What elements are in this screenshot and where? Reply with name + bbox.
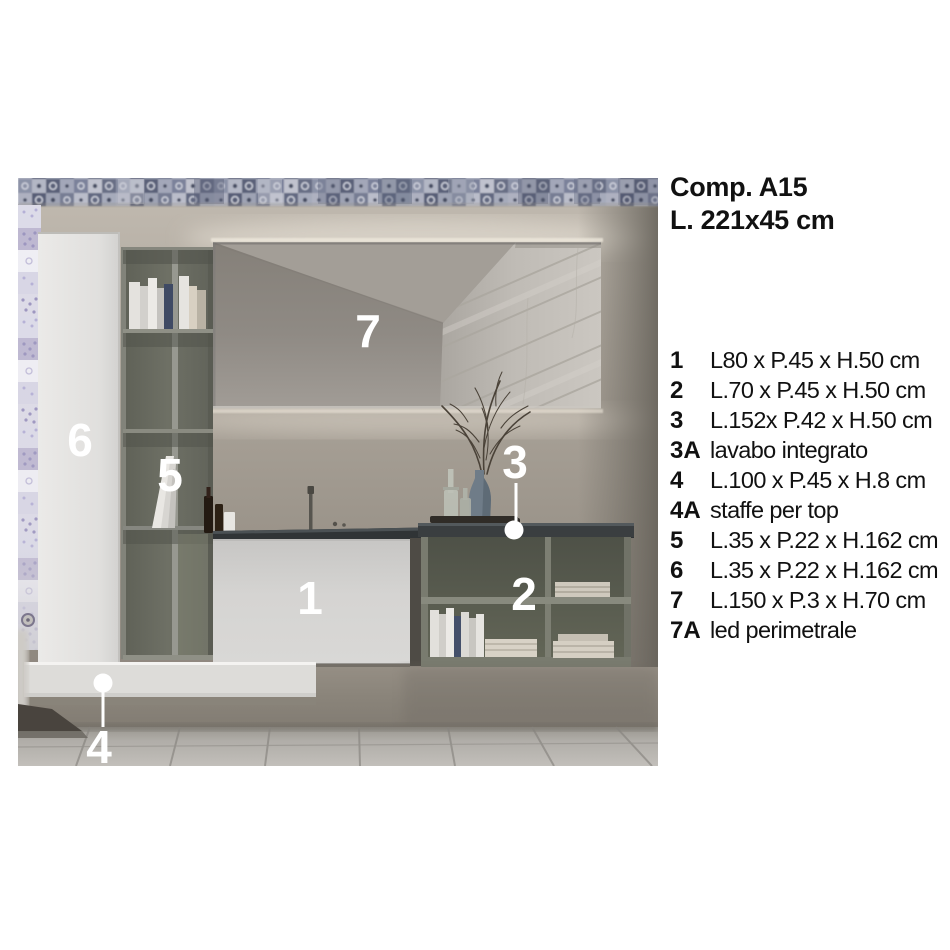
svg-text:7: 7 [355,305,381,357]
svg-text:4: 4 [86,721,112,766]
svg-text:2: 2 [511,568,537,620]
svg-text:5: 5 [157,449,183,501]
svg-text:6: 6 [67,414,93,466]
svg-text:1: 1 [297,572,323,624]
svg-text:3: 3 [502,436,528,488]
